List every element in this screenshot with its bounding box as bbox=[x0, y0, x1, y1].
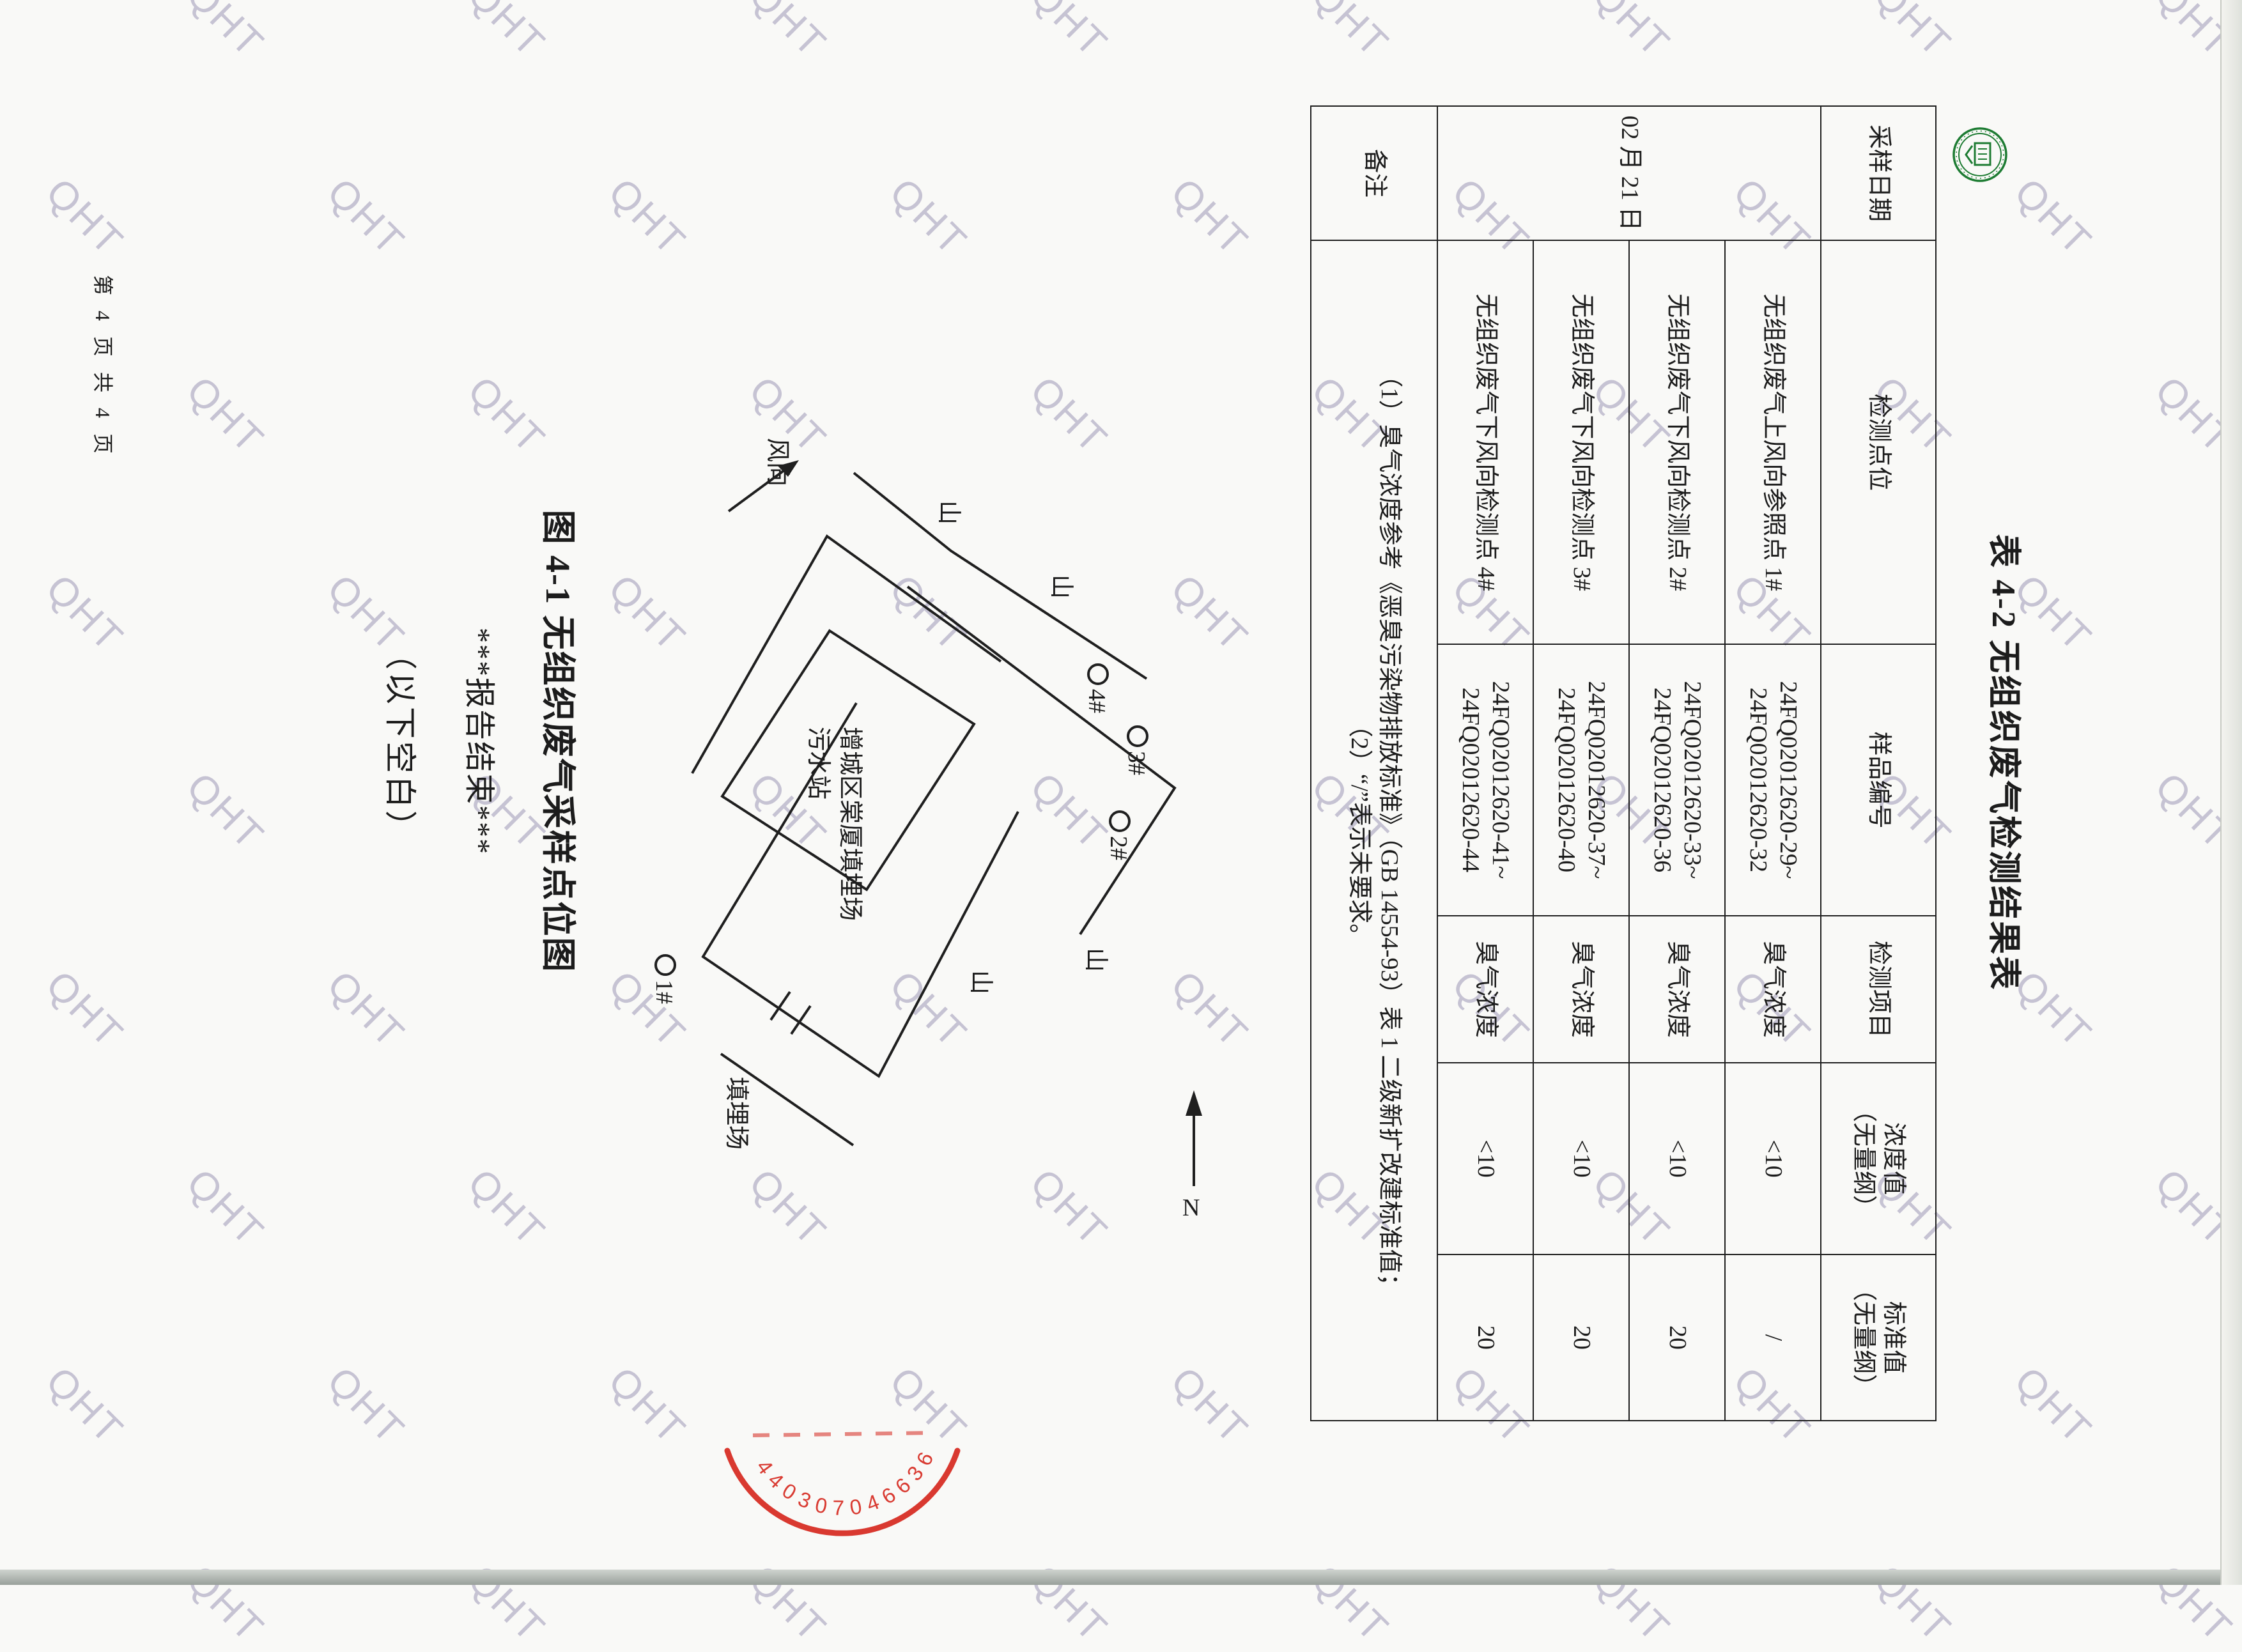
sampling-point-marker-3 bbox=[1128, 727, 1147, 746]
watermark-text: QHT bbox=[37, 1358, 132, 1453]
sampling-point-marker-4 bbox=[1088, 665, 1108, 684]
cell-remark-label: 备注 bbox=[1311, 106, 1437, 240]
watermark-text: QHT bbox=[37, 566, 132, 661]
cell-concentration-1: <10 bbox=[1725, 1063, 1821, 1254]
cell-standard-4: 20 bbox=[1437, 1254, 1533, 1421]
scan-right-edge bbox=[2220, 0, 2242, 1585]
header-standard-line2: （无量纲） bbox=[1848, 1259, 1879, 1416]
header-item: 检测项目 bbox=[1821, 916, 1936, 1063]
table-row: 02 月 21 日 无组织废气上风向参照点 1# 24FQ02012620-29… bbox=[1725, 106, 1821, 1421]
sampling-point-label-2: 2# bbox=[1105, 836, 1132, 860]
mountain-label: 山 bbox=[1082, 948, 1109, 972]
north-label: N bbox=[1182, 1194, 1200, 1221]
watermark-text: QHT bbox=[599, 1358, 695, 1453]
watermark-text: QHT bbox=[1162, 1358, 1257, 1453]
table-remark-row: 备注 （1）臭气浓度参考《恶臭污染物排放标准》（GB 14554-93）表 1 … bbox=[1311, 106, 1437, 1421]
mountain-label: 山 bbox=[935, 500, 962, 525]
header-standard-line1: 标准值 bbox=[1878, 1259, 1909, 1416]
scanned-report-page: { "page": { "watermark_text": "QHT", "fo… bbox=[0, 0, 2242, 1585]
watermark-text: QHT bbox=[178, 1160, 273, 1255]
wind-arrow-icon bbox=[729, 468, 787, 511]
header-sample-id: 样品编号 bbox=[1821, 644, 1936, 916]
cell-item-3: 臭气浓度 bbox=[1533, 916, 1629, 1063]
blank-below-text: （以下空白） bbox=[380, 243, 426, 1240]
cell-sample-id-3: 24FQ02012620-37~ 24FQ02012620-40 bbox=[1533, 644, 1629, 916]
sample-id-line: 24FQ02012620-36 bbox=[1647, 649, 1678, 911]
watermark-text: QHT bbox=[1021, 0, 1117, 66]
cell-sample-id-1: 24FQ02012620-29~ 24FQ02012620-32 bbox=[1725, 644, 1821, 916]
landfill-label: 填埋场 bbox=[723, 1077, 750, 1150]
cell-standard-3: 20 bbox=[1533, 1254, 1629, 1421]
sampling-point-label-1: 1# bbox=[651, 980, 677, 1004]
north-arrow-icon: N bbox=[1182, 1090, 1202, 1221]
report-end-text: ***报告结束*** bbox=[460, 243, 505, 1240]
watermark-text: QHT bbox=[178, 0, 273, 66]
cell-point-2: 无组织废气下风向检测点 2# bbox=[1629, 240, 1725, 644]
cell-concentration-2: <10 bbox=[1629, 1063, 1725, 1254]
figure-caption: 图 4-1 无组织废气采样点位图 bbox=[536, 243, 587, 1240]
watermark-text: QHT bbox=[1162, 169, 1257, 265]
mountain-label: 山 bbox=[967, 970, 994, 994]
watermark-text: QHT bbox=[1303, 0, 1398, 66]
sampling-point-label-4: 4# bbox=[1083, 689, 1110, 713]
cell-sample-id-4: 24FQ02012620-41~ 24FQ02012620-44 bbox=[1437, 644, 1533, 916]
cell-item-2: 臭气浓度 bbox=[1629, 916, 1725, 1063]
scan-bottom-edge bbox=[0, 1570, 2242, 1585]
table-title: 表 4-2 无组织废气检测结果表 bbox=[1983, 105, 2031, 1420]
watermark-text: QHT bbox=[881, 169, 976, 265]
sampling-point-figure: N 风向 山 山 山 山 填埋场 增城区棠厦填埋场 污水站 4# 3# 2# 1… bbox=[561, 371, 1264, 1240]
sample-id-line: 24FQ02012620-37~ bbox=[1581, 649, 1612, 911]
table-header-row: 采样日期 检测点位 样品编号 检测项目 浓度值 （无量纲） 标准值 （无量纲） bbox=[1821, 106, 1936, 1421]
cell-remark-notes: （1）臭气浓度参考《恶臭污染物排放标准》（GB 14554-93）表 1 二级新… bbox=[1311, 240, 1437, 1421]
watermark-text: QHT bbox=[599, 169, 695, 265]
sampling-point-marker-2 bbox=[1110, 812, 1129, 831]
red-seal-code: 4403070466365 bbox=[699, 1269, 941, 1520]
table-row: 无组织废气下风向检测点 4# 24FQ02012620-41~ 24FQ0201… bbox=[1437, 106, 1533, 1421]
watermark-text: QHT bbox=[37, 962, 132, 1057]
watermark-text: QHT bbox=[459, 0, 554, 66]
cell-standard-1: / bbox=[1725, 1254, 1821, 1421]
site-name-line2: 污水站 bbox=[805, 727, 831, 799]
svg-text:4403070466365: 4403070466365 bbox=[699, 1269, 941, 1520]
sample-id-line: 24FQ02012620-40 bbox=[1551, 649, 1582, 911]
watermark-text: QHT bbox=[1865, 0, 1960, 66]
cell-concentration-4: <10 bbox=[1437, 1063, 1533, 1254]
watermark-text: QHT bbox=[1584, 0, 1679, 66]
watermark-text: QHT bbox=[318, 1358, 414, 1453]
watermark-text: QHT bbox=[37, 169, 132, 265]
watermark-text: QHT bbox=[740, 0, 835, 66]
mountain-label: 山 bbox=[1048, 575, 1074, 599]
results-table: 采样日期 检测点位 样品编号 检测项目 浓度值 （无量纲） 标准值 （无量纲） … bbox=[1310, 105, 1937, 1421]
site-name-line1: 增城区棠厦填埋场 bbox=[837, 727, 863, 921]
header-point: 检测点位 bbox=[1821, 240, 1936, 644]
sampling-point-label-3: 3# bbox=[1123, 751, 1150, 775]
cell-item-1: 臭气浓度 bbox=[1725, 916, 1821, 1063]
header-sampling-date: 采样日期 bbox=[1821, 106, 1936, 240]
sample-id-line: 24FQ02012620-32 bbox=[1743, 649, 1774, 911]
cell-point-3: 无组织废气下风向检测点 3# bbox=[1533, 240, 1629, 644]
remark-note-2: （2）“/”表示未要求。 bbox=[1344, 245, 1375, 1416]
red-seal: 4403070466365 bbox=[699, 1269, 986, 1569]
sample-id-line: 24FQ02012620-29~ bbox=[1773, 649, 1804, 911]
cell-standard-2: 20 bbox=[1629, 1254, 1725, 1421]
sample-id-line: 24FQ02012620-41~ bbox=[1485, 649, 1516, 911]
ridge-line-upper bbox=[854, 473, 1147, 679]
watermark-text: QHT bbox=[178, 764, 273, 859]
cell-sample-id-2: 24FQ02012620-33~ 24FQ02012620-36 bbox=[1629, 644, 1725, 916]
header-concentration-line2: （无量纲） bbox=[1848, 1067, 1879, 1250]
sample-id-line: 24FQ02012620-33~ bbox=[1677, 649, 1708, 911]
sampling-point-marker-1 bbox=[656, 955, 675, 975]
sample-id-line: 24FQ02012620-44 bbox=[1455, 649, 1486, 911]
table-row: 无组织废气下风向检测点 3# 24FQ02012620-37~ 24FQ0201… bbox=[1533, 106, 1629, 1421]
header-concentration: 浓度值 （无量纲） bbox=[1821, 1063, 1936, 1254]
cell-point-4: 无组织废气下风向检测点 4# bbox=[1437, 240, 1533, 644]
header-concentration-line1: 浓度值 bbox=[1878, 1067, 1909, 1250]
remark-note-1: （1）臭气浓度参考《恶臭污染物排放标准》（GB 14554-93）表 1 二级新… bbox=[1374, 245, 1405, 1416]
watermark-text: QHT bbox=[178, 367, 273, 463]
header-standard: 标准值 （无量纲） bbox=[1821, 1254, 1936, 1421]
cell-item-4: 臭气浓度 bbox=[1437, 916, 1533, 1063]
cell-concentration-3: <10 bbox=[1533, 1063, 1629, 1254]
cell-sampling-date: 02 月 21 日 bbox=[1437, 106, 1821, 240]
cell-point-1: 无组织废气上风向参照点 1# bbox=[1725, 240, 1821, 644]
document-sheet: QHTQHTQHTQHTQHTQHTQHTQHTQHTQHTQHTQHTQHTQ… bbox=[0, 0, 2242, 1585]
page-number: 第 4 页 共 4 页 bbox=[89, 275, 119, 459]
table-row: 无组织废气下风向检测点 2# 24FQ02012620-33~ 24FQ0201… bbox=[1629, 106, 1725, 1421]
wind-label: 风向 bbox=[764, 438, 791, 486]
